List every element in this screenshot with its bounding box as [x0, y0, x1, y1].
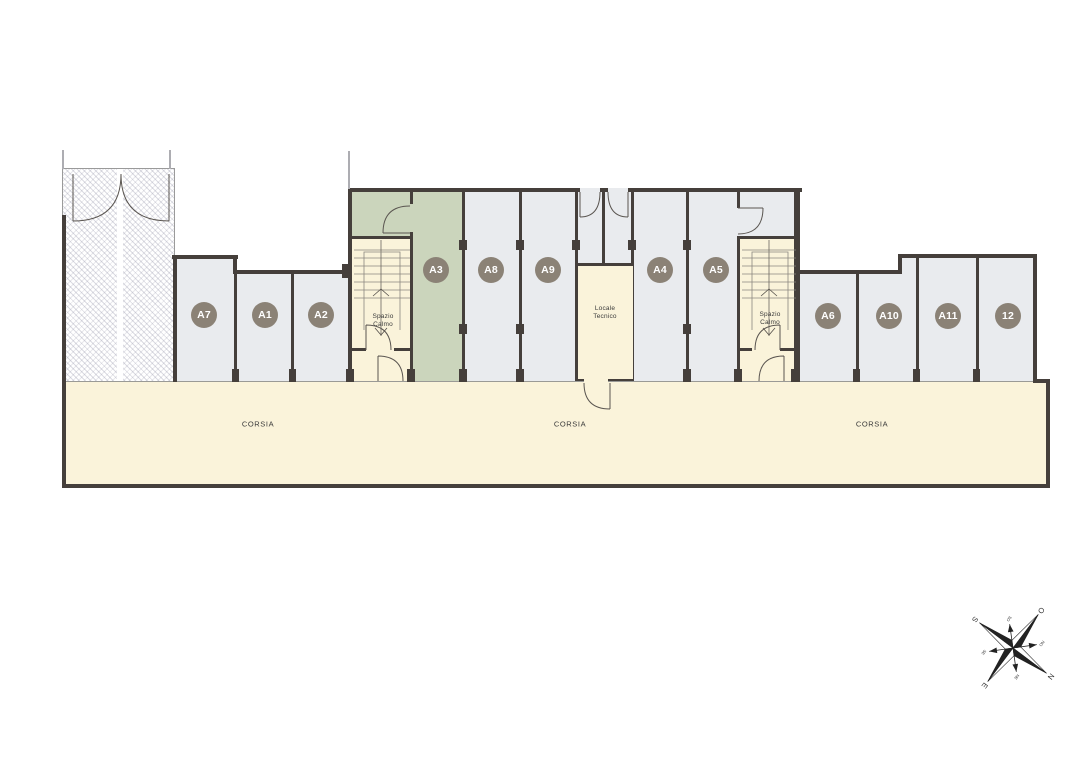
compass-rose-icon: N E S O NE SE SO NO: [961, 596, 1065, 700]
compass-e-label: E: [980, 681, 990, 690]
corsia-label-3: CORSIA: [856, 420, 888, 429]
room-badge-a5: A5: [703, 257, 729, 283]
compass-ne-label: NE: [1013, 673, 1021, 681]
room-badge-a4: A4: [647, 257, 673, 283]
floor-plan: A7 A1 A2 A3 A8 A9 A4 A5 A6 A10 A11 12 Sp…: [0, 0, 1076, 780]
room-badge-a1: A1: [252, 302, 278, 328]
room-badge-a3: A3: [423, 257, 449, 283]
compass-s-label: S: [970, 615, 980, 624]
compass-o-label: O: [1036, 605, 1047, 615]
room-badge-a8: A8: [478, 257, 504, 283]
plan-linework: [0, 0, 1076, 780]
room-badge-a6: A6: [815, 303, 841, 329]
spazio-calmo-label-2: Spazio Calmo: [759, 311, 780, 327]
room-badge-a10: A10: [876, 303, 902, 329]
room-badge-12: 12: [995, 303, 1021, 329]
room-badge-a11: A11: [935, 303, 961, 329]
corsia-label-2: CORSIA: [554, 420, 586, 429]
compass-se-label: SE: [980, 649, 987, 657]
compass-n-label: N: [1046, 672, 1056, 682]
spazio-calmo-label-1: Spazio Calmo: [372, 313, 393, 329]
compass-no-label: NO: [1038, 640, 1046, 648]
room-badge-a7: A7: [191, 302, 217, 328]
room-badge-a2: A2: [308, 302, 334, 328]
door-swings: [366, 192, 784, 409]
corsia-label-1: CORSIA: [242, 420, 274, 429]
room-badge-a9: A9: [535, 257, 561, 283]
locale-tecnico-label: Locale Tecnico: [593, 305, 616, 321]
ramp-double-door: [73, 174, 169, 221]
compass-so-label: SO: [1006, 615, 1013, 623]
